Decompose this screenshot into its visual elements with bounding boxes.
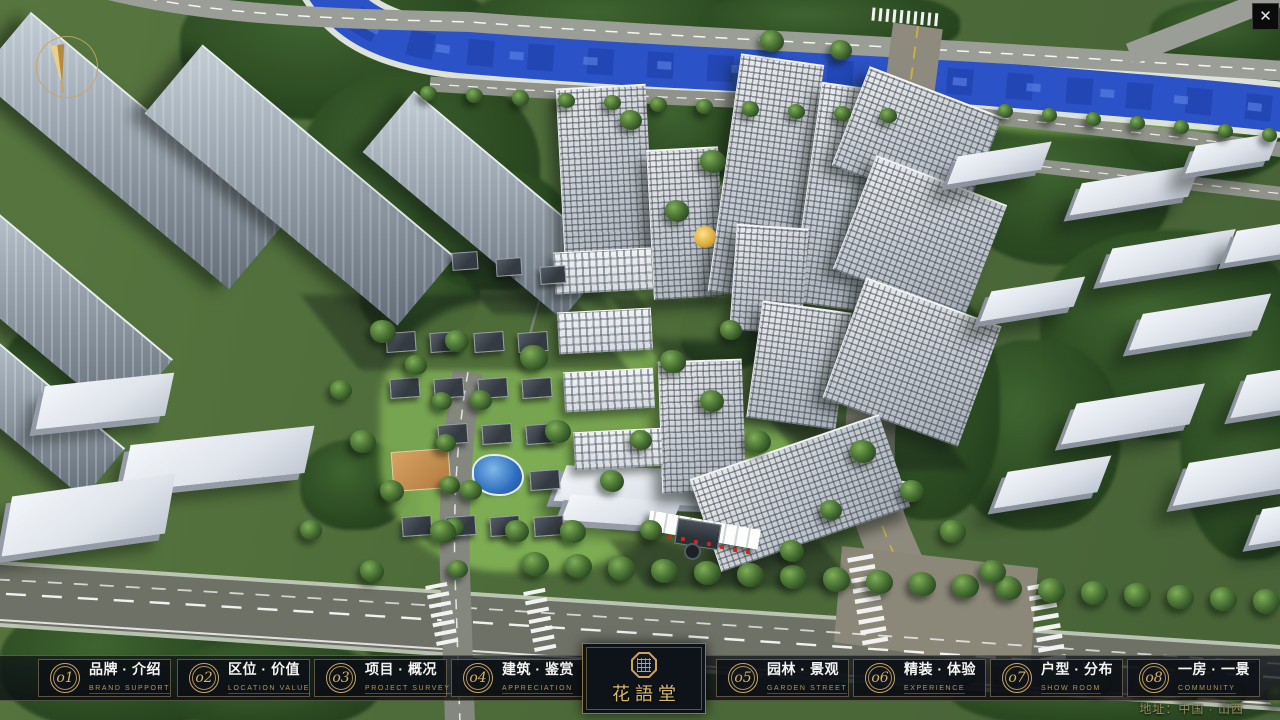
- midrise-building: [563, 368, 655, 413]
- street-tree: [737, 563, 764, 587]
- warehouse-building: [994, 455, 1112, 508]
- courtyard-villa: [529, 469, 560, 491]
- tree-cluster: [720, 320, 742, 340]
- median-tree: [1086, 112, 1101, 126]
- logo-frame: 花語堂: [586, 647, 702, 710]
- tree-cluster: [700, 390, 724, 412]
- warehouse-building: [1070, 164, 1201, 215]
- red-flag: [733, 548, 737, 552]
- courtyard-villa: [495, 257, 522, 277]
- warehouse-building: [1224, 217, 1280, 263]
- tree-cluster: [820, 500, 842, 520]
- nav-number-badge: o6: [865, 663, 895, 693]
- warehouse-building: [980, 276, 1085, 321]
- project-address: 地址：中国 · 山西: [1139, 700, 1244, 717]
- white-slab-building: [36, 373, 174, 430]
- tree-cluster: [430, 520, 456, 543]
- roadside-tree: [448, 560, 468, 578]
- nav-subtitle: EXPERIENCE: [904, 685, 965, 694]
- red-flag: [707, 542, 711, 546]
- tree-cluster: [830, 40, 852, 60]
- aerial-masterplan-render: [0, 0, 1280, 720]
- riverbank-tree: [742, 101, 759, 116]
- midrise-building: [557, 308, 653, 355]
- nav-item-project[interactable]: o3 项目 · 概况 PROJECT SURVEY: [314, 659, 447, 697]
- roadside-tree: [440, 476, 460, 494]
- street-tree: [1253, 589, 1280, 613]
- tree-cluster: [850, 440, 876, 463]
- tree-cluster: [620, 110, 642, 130]
- riverbank-tree: [512, 90, 529, 105]
- median-tree: [1042, 108, 1057, 122]
- riverbank-tree: [880, 108, 897, 123]
- nav-item-architecture[interactable]: o4 建筑 · 鉴赏 APPRECIATION: [451, 659, 584, 697]
- red-flag: [668, 535, 672, 539]
- white-slab-building: [2, 473, 176, 556]
- street-tree: [522, 552, 549, 576]
- nav-subtitle: GARDEN STREET: [767, 685, 847, 694]
- tree-cluster: [780, 540, 804, 562]
- tree-cluster: [745, 430, 771, 453]
- red-flag: [681, 537, 685, 541]
- nav-title: 精装 · 体验: [904, 661, 976, 677]
- tree-cluster: [380, 480, 404, 502]
- riverbank-tree: [650, 97, 667, 112]
- street-tree: [1124, 583, 1151, 607]
- seal-icon: [631, 652, 657, 678]
- red-flag: [694, 540, 698, 544]
- warehouse-building: [1061, 383, 1205, 444]
- nav-item-views[interactable]: o8 一房 · 一景 COMMUNITY: [1127, 659, 1260, 697]
- nav-item-floorplans[interactable]: o7 户型 · 分布 SHOW ROOM: [990, 659, 1123, 697]
- tree-cluster: [980, 560, 1006, 583]
- nav-number-badge: o7: [1002, 663, 1032, 693]
- nav-number-badge: o8: [1139, 663, 1169, 693]
- buildings-layer: [0, 0, 1280, 720]
- tree-cluster: [660, 350, 686, 373]
- nav-item-experience[interactable]: o6 精装 · 体验 EXPERIENCE: [853, 659, 986, 697]
- riverbank-tree: [558, 93, 575, 108]
- warehouse-building: [1099, 229, 1236, 283]
- median-tree: [1174, 120, 1189, 134]
- nav-subtitle: PROJECT SURVEY: [365, 685, 451, 694]
- street-tree: [780, 565, 807, 589]
- red-flag: [720, 545, 724, 549]
- presentation-screen: ✕ o1 品牌 · 介绍 BRAND SUPPORT o2 区位 · 价值 LO…: [0, 0, 1280, 720]
- warehouse-building: [1230, 362, 1280, 418]
- tree-cluster: [630, 430, 652, 450]
- nav-number-badge: o4: [463, 663, 493, 693]
- street-tree: [823, 567, 850, 591]
- midrise-building: [553, 247, 653, 294]
- tree-cluster: [470, 390, 492, 410]
- median-tree: [998, 104, 1013, 118]
- riverbank-tree: [466, 88, 483, 103]
- warehouse-building: [1248, 498, 1280, 546]
- courtyard-villa: [481, 423, 512, 445]
- street-tree: [651, 559, 678, 583]
- nav-number-badge: o1: [50, 663, 80, 693]
- tree-cluster: [665, 200, 689, 222]
- street-tree: [608, 556, 635, 580]
- warehouse-building: [1129, 294, 1271, 351]
- nav-title: 建筑 · 鉴赏: [502, 661, 574, 677]
- courtyard-villa: [473, 331, 504, 353]
- nav-title: 项目 · 概况: [365, 661, 437, 677]
- nav-number-badge: o5: [728, 663, 758, 693]
- tree-cluster: [940, 520, 966, 543]
- nav-item-brand[interactable]: o1 品牌 · 介绍 BRAND SUPPORT: [38, 659, 171, 697]
- nav-subtitle: BRAND SUPPORT: [89, 685, 170, 694]
- street-tree: [1081, 581, 1108, 605]
- nav-item-garden[interactable]: o5 园林 · 景观 GARDEN STREET: [716, 659, 849, 697]
- tree-cluster: [640, 520, 662, 540]
- tree-cluster: [560, 520, 586, 543]
- gate-plaza-disc: [684, 543, 701, 560]
- nav-title: 品牌 · 介绍: [89, 661, 161, 677]
- street-tree: [909, 572, 936, 596]
- riverbank-tree: [696, 99, 713, 114]
- riverbank-tree: [834, 106, 851, 121]
- roadside-tree: [436, 434, 456, 452]
- roadside-tree: [432, 392, 452, 410]
- warehouse-building: [1172, 444, 1280, 506]
- tree-cluster: [520, 345, 548, 370]
- street-tree: [1167, 585, 1194, 609]
- tree-cluster: [700, 150, 726, 173]
- courtyard-villa: [401, 515, 432, 537]
- median-tree: [1218, 124, 1233, 138]
- tree-cluster: [460, 480, 482, 500]
- project-logo-panel[interactable]: 花語堂: [582, 643, 706, 714]
- gold-plaza-feature: [694, 226, 716, 248]
- courtyard-villa: [451, 251, 478, 271]
- nav-title: 一房 · 一景: [1178, 661, 1250, 677]
- street-tree: [1038, 578, 1065, 602]
- tree-cluster: [405, 355, 427, 375]
- nav-number-badge: o3: [326, 663, 356, 693]
- tree-cluster: [445, 330, 469, 352]
- nav-item-location[interactable]: o2 区位 · 价值 LOCATION VALUE: [177, 659, 310, 697]
- nav-title: 区位 · 价值: [228, 661, 300, 677]
- nav-number-badge: o2: [189, 663, 219, 693]
- nav-subtitle: LOCATION VALUE: [228, 685, 310, 694]
- riverbank-tree: [604, 95, 621, 110]
- median-tree: [1130, 116, 1145, 130]
- nav-subtitle: SHOW ROOM: [1041, 685, 1101, 694]
- street-tree: [694, 561, 721, 585]
- riverbank-tree: [420, 86, 437, 101]
- tree-cluster: [505, 520, 529, 542]
- street-tree: [866, 570, 893, 594]
- tree-cluster: [370, 320, 396, 343]
- courtyard-villa: [389, 377, 420, 399]
- tree-cluster: [760, 30, 784, 52]
- courtyard-villa: [521, 377, 552, 399]
- tree-cluster: [600, 470, 624, 492]
- nav-title: 园林 · 景观: [767, 661, 839, 677]
- median-tree: [1262, 128, 1277, 142]
- nav-subtitle: APPRECIATION: [502, 685, 573, 694]
- tree-cluster: [545, 420, 571, 443]
- tree-cluster: [900, 480, 924, 502]
- red-flag: [746, 550, 750, 554]
- nav-subtitle: COMMUNITY: [1178, 685, 1236, 694]
- street-tree: [565, 554, 592, 578]
- tree-cluster: [350, 430, 376, 453]
- close-icon[interactable]: ✕: [1252, 3, 1279, 30]
- street-tree: [952, 574, 979, 598]
- compass-north-icon: [32, 32, 101, 101]
- nav-title: 户型 · 分布: [1041, 661, 1113, 677]
- tree-cluster: [300, 520, 322, 540]
- tree-cluster: [330, 380, 352, 400]
- courtyard-villa: [539, 265, 566, 285]
- tree-cluster: [360, 560, 384, 582]
- riverbank-tree: [788, 104, 805, 119]
- project-name: 花語堂: [607, 680, 681, 706]
- residential-tower: [556, 84, 655, 256]
- street-tree: [1210, 587, 1237, 611]
